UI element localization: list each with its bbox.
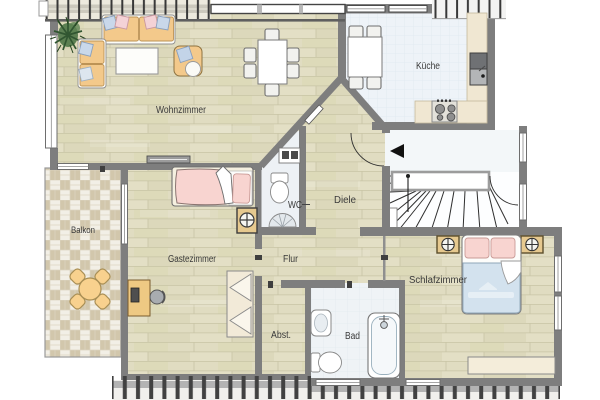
svg-text:Balkon: Balkon [71, 225, 95, 236]
svg-text:Flur: Flur [283, 254, 299, 265]
svg-text:Schlafzimmer: Schlafzimmer [409, 275, 468, 286]
svg-text:Gastezimmer: Gastezimmer [168, 254, 217, 265]
svg-text:Abst.: Abst. [271, 330, 291, 341]
svg-text:Wohnzimmer: Wohnzimmer [156, 105, 207, 116]
svg-text:WC: WC [288, 200, 302, 211]
svg-text:Diele: Diele [334, 195, 356, 206]
svg-text:Küche: Küche [416, 61, 440, 72]
svg-text:Bad: Bad [345, 331, 360, 342]
